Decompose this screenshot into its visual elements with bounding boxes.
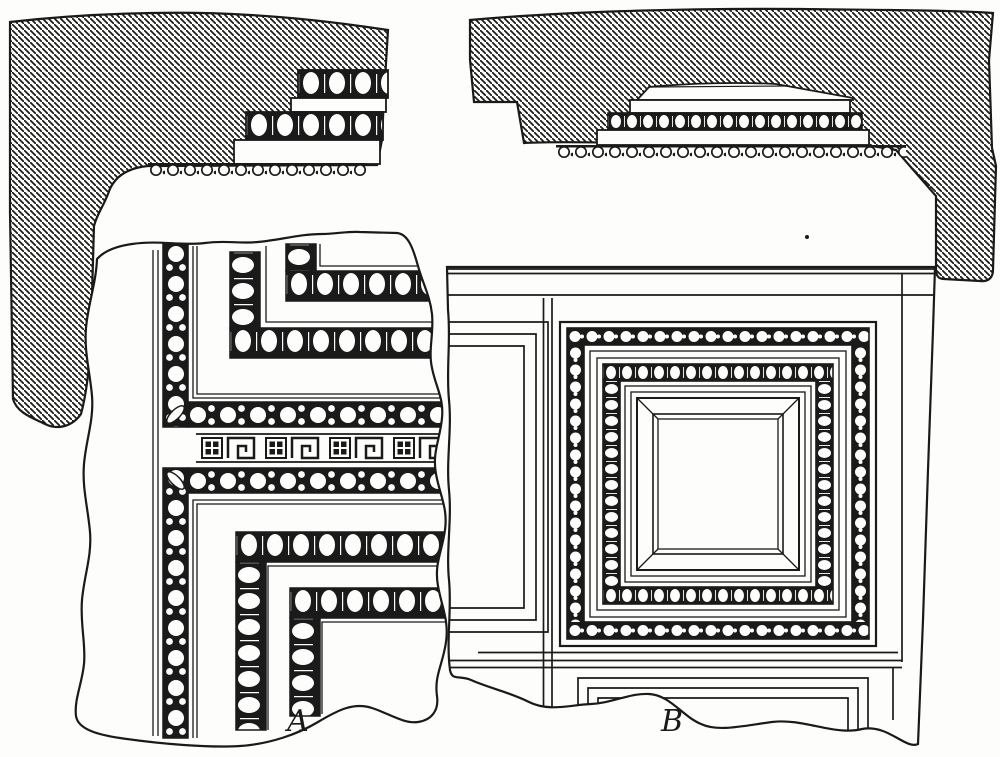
- bead-row: [556, 145, 906, 158]
- coffer-panel-b: B: [447, 267, 935, 745]
- bead-row: [148, 163, 366, 177]
- plain-fascia: [234, 140, 380, 164]
- egg-and-dart-band: [298, 70, 388, 98]
- ink-dot: [805, 235, 809, 239]
- cornice-section-right: [470, 9, 996, 281]
- label-a: A: [284, 704, 309, 739]
- egg-and-dart-band: [608, 113, 862, 130]
- egg-and-dart-band: [246, 112, 383, 140]
- plain-fillet: [630, 100, 850, 113]
- plain-fascia: [597, 130, 869, 145]
- soffit-fragment-a: A: [76, 232, 458, 747]
- label-b: B: [660, 704, 683, 739]
- engraved-coffer-plate: B: [0, 0, 1000, 757]
- meander-band: [196, 434, 458, 462]
- plain-fillet: [291, 98, 386, 112]
